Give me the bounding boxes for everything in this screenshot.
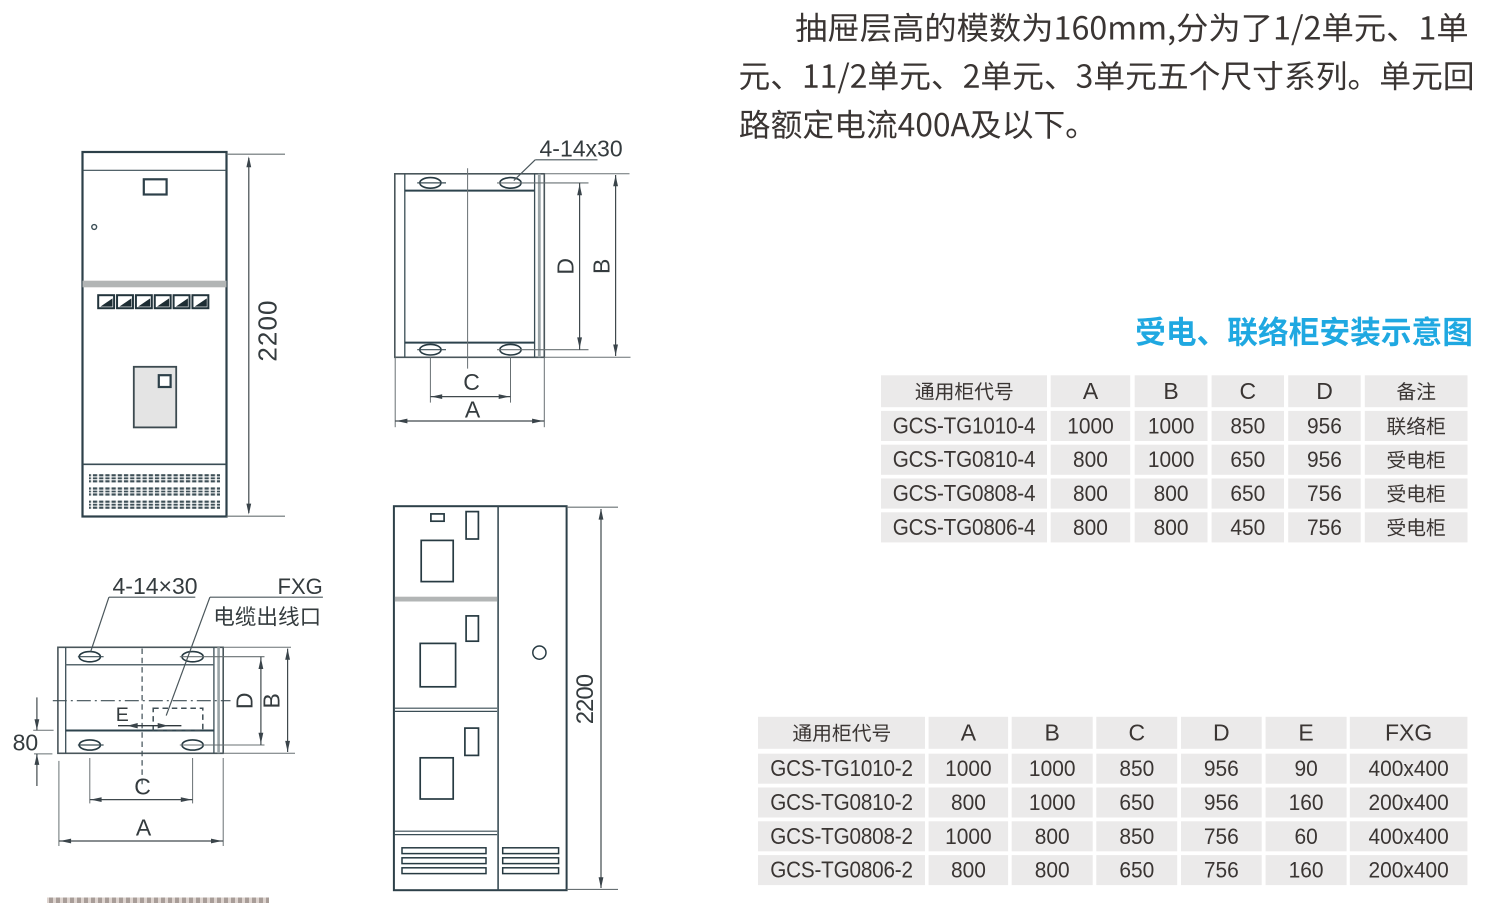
svg-text:756: 756 (1307, 514, 1342, 540)
svg-text:E: E (1298, 719, 1313, 745)
svg-text:956: 956 (1307, 413, 1342, 439)
svg-text:C: C (1239, 378, 1256, 404)
svg-text:C: C (463, 369, 480, 395)
svg-text:850: 850 (1119, 823, 1154, 849)
svg-text:D: D (1213, 719, 1230, 745)
svg-text:FXG: FXG (278, 574, 323, 599)
svg-text:GCS-TG1010-2: GCS-TG1010-2 (770, 755, 913, 782)
svg-text:2200: 2200 (572, 674, 599, 724)
svg-text:GCS-TG0808-2: GCS-TG0808-2 (770, 823, 913, 850)
svg-text:1000: 1000 (945, 823, 992, 849)
svg-text:650: 650 (1230, 446, 1265, 472)
svg-text:1000: 1000 (1148, 446, 1195, 472)
svg-text:850: 850 (1119, 755, 1154, 781)
svg-text:800: 800 (951, 857, 986, 883)
svg-text:650: 650 (1119, 857, 1154, 883)
svg-text:D: D (553, 258, 579, 275)
svg-text:B: B (1163, 378, 1178, 404)
svg-text:D: D (232, 692, 258, 709)
svg-text:D: D (1316, 378, 1333, 404)
svg-text:200x400: 200x400 (1368, 857, 1448, 883)
svg-text:956: 956 (1204, 755, 1239, 781)
svg-text:756: 756 (1307, 480, 1342, 506)
svg-text:160: 160 (1289, 857, 1324, 883)
svg-text:FXG: FXG (1385, 719, 1432, 745)
svg-text:4-14x30: 4-14x30 (540, 136, 623, 162)
svg-text:2200: 2200 (252, 299, 282, 361)
svg-text:160: 160 (1289, 789, 1324, 815)
svg-text:GCS-TG1010-4: GCS-TG1010-4 (893, 412, 1036, 439)
svg-text:GCS-TG0806-2: GCS-TG0806-2 (770, 856, 913, 883)
svg-text:1000: 1000 (1067, 413, 1114, 439)
svg-text:A: A (465, 396, 481, 422)
svg-text:4-14×30: 4-14×30 (113, 573, 198, 599)
svg-text:E: E (116, 704, 129, 726)
svg-text:80: 80 (13, 730, 39, 756)
svg-text:956: 956 (1307, 446, 1342, 472)
svg-text:400x400: 400x400 (1368, 755, 1448, 781)
svg-text:GCS-TG0806-4: GCS-TG0806-4 (893, 514, 1036, 541)
svg-text:1000: 1000 (1029, 789, 1076, 815)
svg-text:756: 756 (1204, 823, 1239, 849)
svg-text:GCS-TG0810-2: GCS-TG0810-2 (770, 789, 913, 816)
svg-text:450: 450 (1230, 514, 1265, 540)
svg-text:650: 650 (1119, 789, 1154, 815)
svg-text:1000: 1000 (1029, 755, 1076, 781)
svg-text:B: B (258, 693, 284, 708)
svg-text:60: 60 (1294, 823, 1317, 849)
svg-text:1000: 1000 (945, 755, 992, 781)
svg-text:800: 800 (1073, 480, 1108, 506)
svg-text:C: C (1128, 719, 1145, 745)
svg-text:200x400: 200x400 (1368, 789, 1448, 815)
svg-text:B: B (1045, 719, 1060, 745)
svg-text:800: 800 (1035, 857, 1070, 883)
svg-text:800: 800 (1035, 823, 1070, 849)
svg-text:A: A (1083, 378, 1099, 404)
svg-text:800: 800 (1073, 446, 1108, 472)
svg-text:B: B (588, 259, 614, 274)
svg-text:800: 800 (1073, 514, 1108, 540)
svg-text:650: 650 (1230, 480, 1265, 506)
svg-text:800: 800 (1154, 514, 1189, 540)
svg-text:A: A (961, 719, 977, 745)
svg-text:800: 800 (1154, 480, 1189, 506)
svg-text:90: 90 (1294, 755, 1317, 781)
svg-text:A: A (136, 815, 152, 841)
svg-text:C: C (134, 773, 151, 799)
svg-text:1000: 1000 (1148, 413, 1195, 439)
svg-text:400x400: 400x400 (1368, 823, 1448, 849)
svg-text:756: 756 (1204, 857, 1239, 883)
svg-text:956: 956 (1204, 789, 1239, 815)
svg-text:GCS-TG0810-4: GCS-TG0810-4 (893, 446, 1036, 473)
svg-text:850: 850 (1230, 413, 1265, 439)
svg-text:800: 800 (951, 789, 986, 815)
svg-text:GCS-TG0808-4: GCS-TG0808-4 (893, 480, 1036, 507)
